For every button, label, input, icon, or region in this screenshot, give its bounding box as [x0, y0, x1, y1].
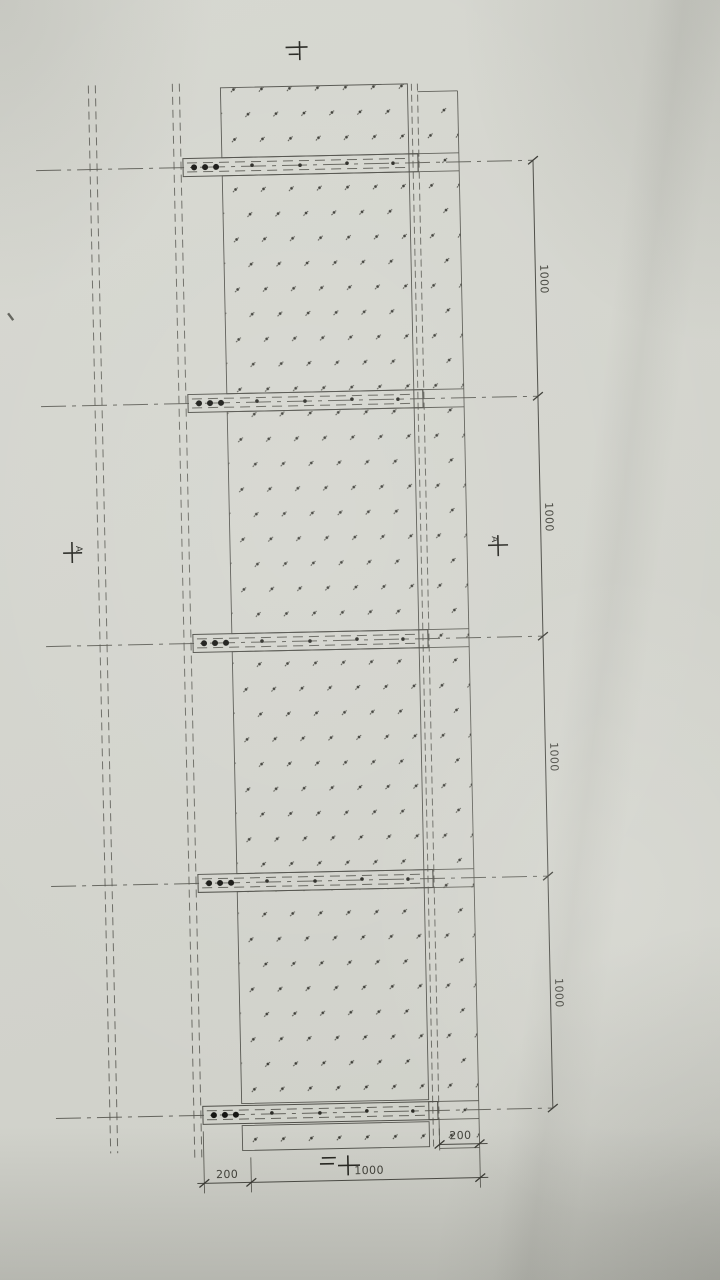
- panel-1: [222, 172, 414, 394]
- beam-band: [203, 1101, 479, 1125]
- panel-4: [237, 888, 428, 1104]
- axis-label-a-right: A: [489, 536, 499, 543]
- stippled-panels: [220, 83, 479, 1153]
- blueprint-photo: 1000 1000 1000 1000 200 200 100: [0, 0, 720, 1280]
- dim-label-1000: 1000: [542, 502, 556, 532]
- axis-marker-left: A: [63, 542, 83, 563]
- section-marker-top: [285, 41, 307, 60]
- dim-label-1000: 1000: [547, 742, 561, 772]
- dim-label-200-strip: 200: [449, 1129, 471, 1142]
- panel-top-partial: [220, 84, 408, 158]
- dim-label-1000: 1000: [537, 264, 551, 294]
- dim-label-1000: 1000: [552, 978, 566, 1008]
- axis-grid-dashed-columns: [88, 84, 202, 1164]
- axis-marker-right: A: [488, 535, 508, 556]
- structural-plan-drawing: 1000 1000 1000 1000 200 200 100: [0, 0, 720, 1280]
- edge-strip-panel: [418, 91, 480, 1149]
- stray-pen-mark: [8, 313, 13, 320]
- right-dimension-chain: 1000 1000 1000 1000: [528, 156, 568, 1112]
- panel-3: [232, 648, 424, 874]
- panel-2: [227, 408, 419, 634]
- axis-label-a-left: A: [73, 546, 83, 553]
- panel-bottom-partial: [242, 1122, 429, 1151]
- dim-label-200: 200: [216, 1168, 238, 1181]
